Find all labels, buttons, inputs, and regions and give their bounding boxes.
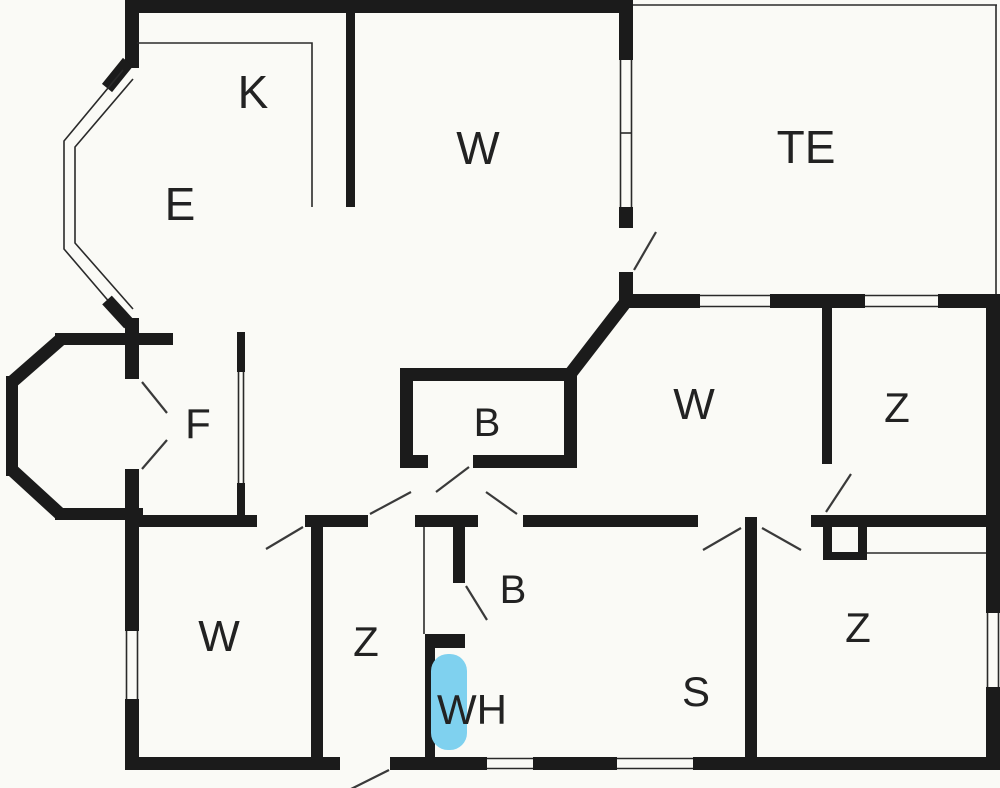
- room-label-bedroom-bottom-left: W: [198, 612, 240, 661]
- wall-segment: [523, 515, 698, 527]
- wall-s-z-divider: [745, 517, 757, 757]
- wall-bottom: [693, 757, 1000, 770]
- wall-w-z-divider: [311, 517, 323, 757]
- room-label-bedroom-bottom-right: Z: [845, 604, 871, 651]
- room-label-sauna: S: [682, 668, 710, 715]
- room-label-terrace: TE: [777, 121, 836, 173]
- floor-plan: K E W TE F B W Z W Z B WH S Z: [0, 0, 1000, 788]
- chimney-wall: [823, 552, 867, 560]
- wall-w-z-top-divider: [822, 308, 832, 464]
- wall-right: [986, 294, 1000, 613]
- wall-left-upper: [125, 0, 139, 68]
- room-label-water-heater: WH: [437, 686, 507, 733]
- wall-z-b-divider: [453, 517, 465, 583]
- wall-segment: [811, 515, 986, 527]
- wall-segment: [415, 515, 478, 527]
- room-label-kitchen: K: [238, 66, 269, 118]
- wall-terrace-bottom: [633, 294, 700, 308]
- wall-segment: [400, 368, 413, 468]
- wall-segment: [619, 0, 633, 60]
- room-label-hall: F: [185, 400, 211, 447]
- wall-segment: [564, 368, 577, 468]
- wall-bottom: [125, 757, 340, 770]
- room-label-dining: E: [165, 178, 196, 230]
- wall-bottom: [390, 757, 487, 770]
- wall-segment: [400, 368, 577, 381]
- wall-left-lower: [125, 527, 139, 631]
- plan-background: [0, 0, 1000, 788]
- room-label-living: W: [456, 122, 500, 174]
- wall-segment: [619, 207, 633, 228]
- room-label-room-bottom-left: Z: [353, 618, 379, 665]
- room-label-bedroom-right: W: [673, 380, 715, 429]
- wall-terrace-bottom: [938, 294, 1000, 308]
- wall-wh-jog: [425, 634, 465, 648]
- wall-hall-fin: [237, 483, 245, 527]
- room-label-bedroom-top-right: Z: [884, 384, 910, 431]
- wall-top: [125, 0, 633, 13]
- wall-hall-fin: [237, 332, 245, 372]
- room-label-bathroom-lower: B: [500, 568, 527, 612]
- wall-bottom: [533, 757, 617, 770]
- wall-left: [125, 345, 139, 379]
- wall-segment: [400, 455, 428, 468]
- wall-terrace-bottom: [770, 294, 865, 308]
- room-label-bathroom-upper: B: [474, 401, 501, 445]
- wall-kitchen-partition: [346, 13, 355, 207]
- bay-wall-left: [6, 376, 18, 476]
- wall-segment: [473, 455, 577, 468]
- bay-wall-top: [55, 333, 173, 345]
- wall-right: [986, 687, 1000, 770]
